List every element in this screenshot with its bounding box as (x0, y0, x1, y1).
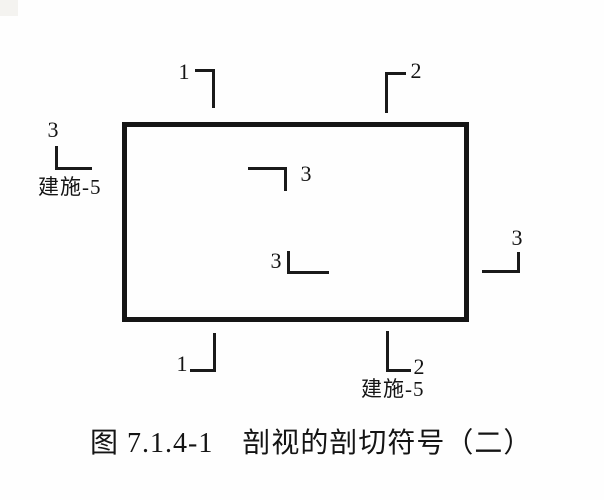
section-number-right-3: 3 (507, 227, 527, 249)
figure-caption: 图 7.1.4-1 剖视的剖切符号（二） (90, 429, 532, 458)
cut-mark-inner-lower-3-icon (287, 251, 329, 274)
cut-mark-bottom-1-icon (190, 333, 216, 372)
cut-mark-inner-upper-3-icon (248, 167, 287, 191)
section-number-bottom-2: 2 (409, 356, 429, 378)
section-number-inner-lower-3: 3 (266, 250, 286, 272)
cut-mark-left-3-icon (55, 146, 92, 170)
cut-mark-right-3-icon (482, 252, 520, 273)
drawing-ref-label-bottom: 建施-5 (361, 378, 425, 401)
cut-mark-top-1-icon (195, 69, 215, 108)
section-number-top-2: 2 (406, 60, 426, 82)
cut-mark-bottom-2-icon (386, 331, 411, 372)
section-number-bottom-1: 1 (172, 353, 192, 375)
figure-canvas: 1 2 3 3 3 3 1 2 建施-5 建施-5 图 7.1.4-1 剖视的剖… (0, 0, 604, 500)
section-number-inner-upper-3: 3 (296, 163, 316, 185)
cut-mark-top-2-icon (385, 72, 406, 113)
plan-outline-rectangle (122, 122, 469, 322)
section-number-left-3: 3 (43, 119, 63, 141)
drawing-ref-label-left: 建施-5 (38, 176, 102, 199)
section-number-top-1: 1 (174, 61, 194, 83)
scan-artifact (0, 0, 18, 16)
